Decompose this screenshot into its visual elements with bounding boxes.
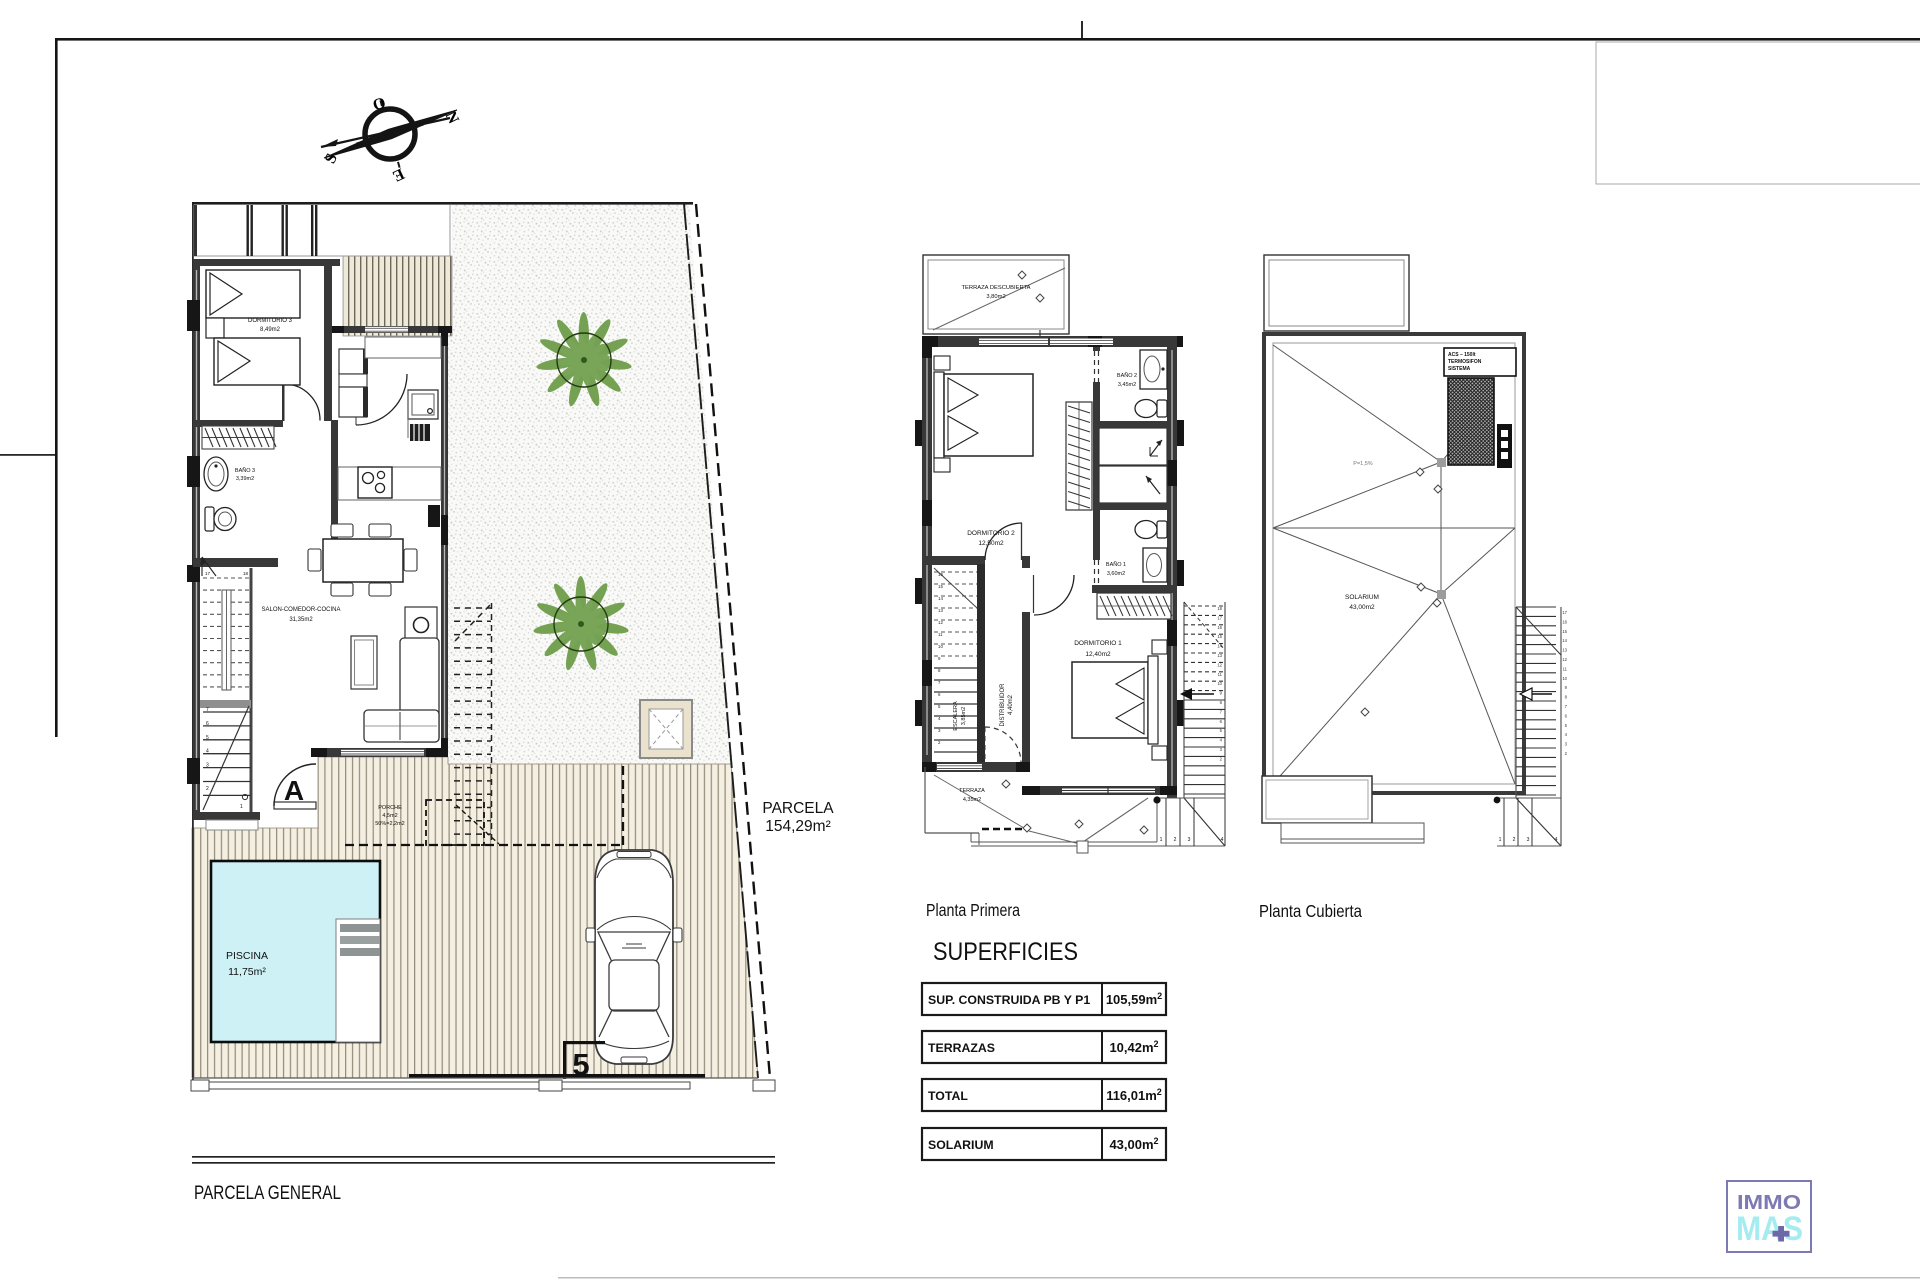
svg-text:12: 12: [938, 620, 943, 625]
svg-text:4: 4: [1220, 738, 1223, 743]
svg-text:BAÑO 1: BAÑO 1: [1106, 561, 1126, 568]
svg-text:13: 13: [1562, 648, 1567, 653]
svg-text:12: 12: [1562, 657, 1567, 662]
svg-text:11: 11: [1563, 666, 1568, 671]
svg-text:11: 11: [1218, 672, 1223, 677]
svg-text:50%=2,2m2: 50%=2,2m2: [375, 821, 405, 827]
svg-text:9: 9: [1565, 685, 1568, 690]
svg-text:3,85m2: 3,85m2: [961, 707, 967, 725]
svg-text:8: 8: [938, 668, 941, 673]
svg-text:1: 1: [240, 804, 243, 810]
svg-text:8: 8: [1565, 695, 1568, 700]
svg-text:3: 3: [1565, 742, 1568, 747]
svg-text:3,60m2: 3,60m2: [1107, 571, 1125, 577]
svg-text:TERRAZAS: TERRAZAS: [928, 1041, 995, 1055]
svg-text:13: 13: [1217, 653, 1222, 658]
svg-text:1: 1: [1160, 837, 1163, 843]
svg-text:4,40m2: 4,40m2: [1008, 694, 1014, 715]
svg-text:TERRAZA: TERRAZA: [959, 788, 985, 794]
svg-text:18: 18: [243, 571, 249, 576]
svg-text:12,50m2: 12,50m2: [978, 540, 1004, 547]
svg-text:43,00m2: 43,00m2: [1349, 604, 1375, 611]
svg-text:6: 6: [938, 692, 941, 697]
svg-text:TOTAL: TOTAL: [928, 1089, 968, 1103]
svg-text:154,29m²: 154,29m²: [765, 818, 830, 835]
svg-text:2: 2: [1174, 837, 1177, 843]
svg-text:9: 9: [938, 656, 941, 661]
svg-text:4: 4: [1555, 837, 1558, 843]
svg-text:P=1,5%: P=1,5%: [1353, 461, 1373, 467]
svg-text:16: 16: [1562, 619, 1567, 624]
svg-text:PORCHE: PORCHE: [378, 805, 402, 811]
svg-text:10: 10: [1217, 681, 1222, 686]
svg-text:8,49m2: 8,49m2: [260, 327, 281, 333]
svg-text:3,45m2: 3,45m2: [1118, 382, 1136, 388]
svg-text:3: 3: [206, 763, 209, 769]
svg-text:ESCALERA: ESCALERA: [953, 701, 959, 731]
svg-text:ACS – 150lt: ACS – 150lt: [1448, 352, 1476, 358]
svg-text:3: 3: [1527, 837, 1530, 843]
svg-text:SUPERFICIES: SUPERFICIES: [933, 938, 1078, 966]
svg-text:12: 12: [1217, 662, 1222, 667]
svg-text:11: 11: [938, 632, 943, 637]
svg-text:7: 7: [206, 707, 209, 713]
svg-text:4: 4: [938, 716, 941, 721]
svg-text:4,35m2: 4,35m2: [963, 797, 981, 803]
svg-text:3,39m2: 3,39m2: [236, 476, 254, 482]
svg-text:2: 2: [206, 786, 209, 792]
svg-text:43,00m2: 43,00m2: [1109, 1136, 1158, 1152]
svg-text:6: 6: [1220, 719, 1223, 724]
svg-text:17: 17: [1217, 615, 1222, 620]
svg-text:2: 2: [938, 740, 941, 745]
svg-text:O: O: [371, 95, 388, 115]
svg-text:4: 4: [1221, 837, 1224, 843]
svg-text:SOLARIUM: SOLARIUM: [1345, 594, 1379, 601]
svg-text:2: 2: [1565, 751, 1568, 756]
svg-text:SOLARIUM: SOLARIUM: [928, 1138, 994, 1152]
svg-text:BAÑO 2: BAÑO 2: [1117, 372, 1137, 379]
svg-text:5: 5: [938, 704, 941, 709]
svg-text:3: 3: [1220, 747, 1223, 752]
svg-text:10: 10: [1562, 676, 1567, 681]
svg-text:9: 9: [1220, 691, 1223, 696]
svg-text:10: 10: [938, 644, 943, 649]
svg-text:Planta Cubierta: Planta Cubierta: [1259, 901, 1362, 921]
svg-text:TERRAZA DESCUBIERTA: TERRAZA DESCUBIERTA: [961, 285, 1030, 291]
svg-text:6: 6: [206, 721, 209, 727]
svg-text:1: 1: [1499, 837, 1502, 843]
svg-text:SALON-COMEDOR-COCINA: SALON-COMEDOR-COCINA: [261, 607, 340, 613]
svg-text:A: A: [284, 775, 304, 806]
svg-text:TERMOSIFON: TERMOSIFON: [1448, 359, 1482, 365]
svg-text:15: 15: [1217, 634, 1222, 639]
svg-text:3: 3: [938, 728, 941, 733]
svg-text:18: 18: [1217, 606, 1222, 611]
svg-text:4,5m2: 4,5m2: [382, 813, 397, 819]
svg-text:BAÑO 3: BAÑO 3: [235, 467, 255, 474]
svg-text:3: 3: [1188, 837, 1191, 843]
svg-text:16: 16: [1217, 625, 1222, 630]
svg-text:DORMITORIO 2: DORMITORIO 2: [967, 530, 1015, 537]
svg-text:N: N: [441, 109, 462, 127]
svg-text:11,75m²: 11,75m²: [228, 966, 266, 978]
svg-text:31,35m2: 31,35m2: [289, 617, 313, 623]
svg-text:8: 8: [1220, 700, 1223, 705]
svg-text:14: 14: [1217, 644, 1222, 649]
svg-text:3,80m2: 3,80m2: [986, 294, 1005, 300]
svg-text:12,40m2: 12,40m2: [1085, 651, 1111, 658]
svg-text:17: 17: [1562, 610, 1567, 615]
svg-text:7: 7: [938, 680, 941, 685]
svg-text:5: 5: [1565, 723, 1568, 728]
svg-text:105,59m2: 105,59m2: [1106, 991, 1162, 1007]
svg-text:4: 4: [206, 749, 209, 755]
svg-text:10,42m2: 10,42m2: [1109, 1039, 1158, 1055]
svg-text:15: 15: [1562, 629, 1567, 634]
svg-text:SUP. CONSTRUIDA PB Y P1: SUP. CONSTRUIDA PB Y P1: [928, 993, 1090, 1007]
svg-text:PARCELA GENERAL: PARCELA GENERAL: [194, 1182, 341, 1204]
svg-text:14: 14: [938, 596, 943, 601]
svg-text:16: 16: [938, 572, 943, 577]
svg-text:4: 4: [1565, 732, 1568, 737]
svg-text:17: 17: [205, 571, 211, 576]
svg-text:13: 13: [938, 608, 943, 613]
svg-text:2: 2: [1220, 756, 1223, 761]
svg-text:5: 5: [206, 735, 209, 741]
svg-text:7: 7: [1565, 704, 1568, 709]
svg-text:5: 5: [1220, 728, 1223, 733]
svg-text:7: 7: [1220, 709, 1223, 714]
svg-text:DORMITORIO 3: DORMITORIO 3: [248, 318, 293, 324]
svg-text:DISTRIBUIDOR: DISTRIBUIDOR: [1000, 683, 1006, 727]
svg-text:14: 14: [1562, 638, 1567, 643]
svg-text:E: E: [390, 165, 407, 185]
svg-text:15: 15: [938, 584, 943, 589]
svg-text:PISCINA: PISCINA: [226, 950, 268, 962]
svg-text:2: 2: [1513, 837, 1516, 843]
svg-text:MAS: MAS: [1736, 1210, 1803, 1248]
svg-text:PARCELA: PARCELA: [762, 800, 834, 817]
svg-text:SISTEMA: SISTEMA: [1448, 366, 1471, 372]
svg-text:DORMITORIO 1: DORMITORIO 1: [1074, 640, 1122, 647]
svg-text:Planta Primera: Planta Primera: [926, 900, 1020, 920]
svg-text:116,01m2: 116,01m2: [1106, 1087, 1162, 1103]
svg-text:6: 6: [1565, 713, 1568, 718]
